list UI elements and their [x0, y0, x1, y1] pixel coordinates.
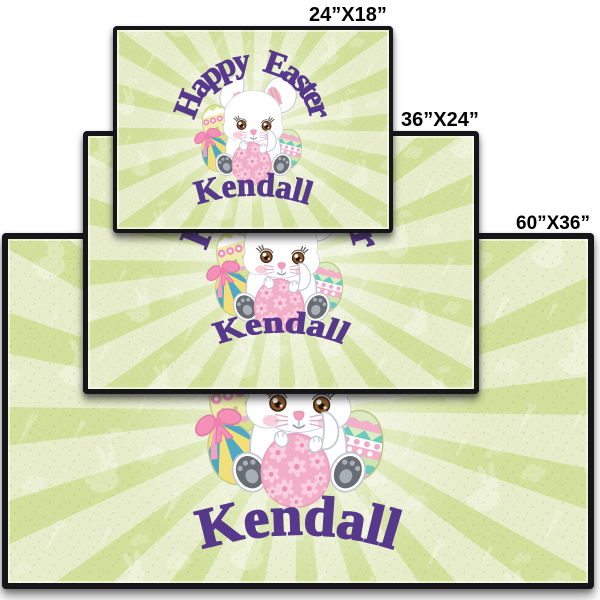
- svg-text:Happy Easter: Happy Easter: [167, 42, 340, 123]
- svg-text:Kendall: Kendall: [190, 166, 316, 212]
- svg-text:Kendall: Kendall: [209, 306, 355, 350]
- svg-text:Kendall: Kendall: [190, 485, 408, 562]
